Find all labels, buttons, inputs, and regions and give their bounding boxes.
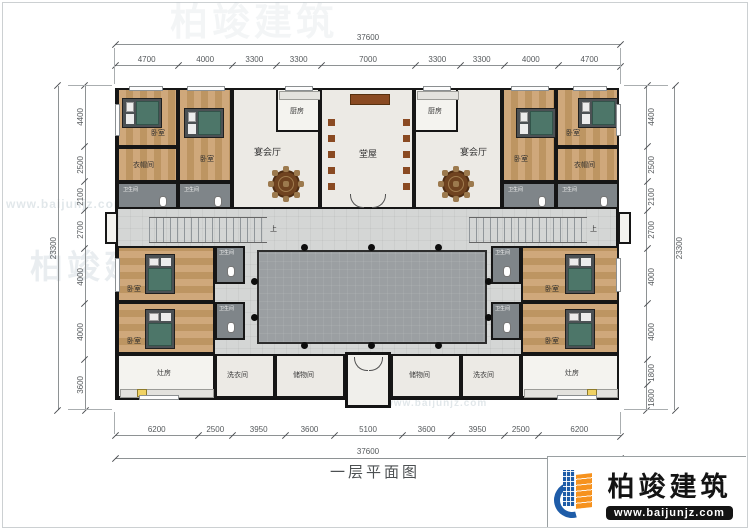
window-icon: [139, 395, 179, 400]
room-label: 卫生间: [508, 188, 523, 193]
dimension-value: 2700: [647, 221, 656, 239]
dimension-segment: 4000: [646, 249, 668, 305]
dimension-value: 5100: [359, 425, 377, 435]
bed-icon: [565, 309, 595, 349]
room-stove-left: 灶房: [117, 354, 215, 398]
dimension-value: 3300: [428, 55, 446, 65]
room-label: 储物间: [409, 372, 430, 379]
right-overall-dimension: 23300: [674, 86, 695, 410]
brand-building-icon: [554, 466, 600, 518]
room-bedroom-top-right-2: 卧室: [556, 88, 619, 147]
altar-table-icon: [350, 94, 390, 105]
room-main-hall: 堂屋: [320, 88, 414, 209]
column-dot: [301, 244, 308, 251]
extension-line: [68, 409, 112, 410]
column-dot: [251, 314, 258, 321]
door-arc-icon: [372, 194, 386, 208]
toilet-icon: [214, 196, 222, 207]
window-icon: [115, 104, 120, 136]
dimension-value: 3950: [468, 425, 486, 435]
dimension-segment: 4000: [646, 304, 668, 360]
dimension-value: 4400: [76, 108, 85, 126]
dimension-value: 1800: [647, 389, 656, 407]
dimension-value: 2700: [76, 221, 85, 239]
room-label: 卧室: [151, 130, 165, 137]
window-icon: [187, 86, 225, 91]
room-label: 卧室: [545, 286, 559, 293]
toilet-icon: [503, 266, 511, 277]
dimension-value: 2500: [76, 156, 85, 174]
dimension-value: 3300: [245, 55, 263, 65]
room-label: 洗衣间: [227, 372, 248, 379]
dimension-segment: 4000: [504, 46, 558, 66]
dimension-value: 37600: [357, 447, 379, 458]
door-arc-icon: [350, 194, 364, 208]
round-table-icon: [272, 170, 300, 198]
dimension-segment: 2500: [64, 147, 86, 182]
dimension-value: 4000: [522, 55, 540, 65]
bed-icon: [145, 254, 175, 294]
dimension-value: 2500: [647, 156, 656, 174]
room-cloakroom-right: 衣帽间: [556, 147, 619, 182]
dimension-value: 3950: [250, 425, 268, 435]
dimension-segment: 4000: [64, 249, 86, 305]
window-icon: [616, 104, 621, 136]
toilet-icon: [538, 196, 546, 207]
room-bedroom-wing-right-1: 卧室: [521, 246, 619, 302]
room-bathroom: 卫生间: [556, 182, 619, 209]
dimension-value: 4000: [76, 268, 85, 286]
dimension-segment: 1800: [646, 385, 668, 410]
room-label: 宴会厅: [254, 148, 281, 157]
room-bedroom-wing-left-2: 卧室: [117, 302, 215, 354]
dimension-segment: 3600: [402, 416, 450, 436]
dimension-segment: 7000: [321, 46, 415, 66]
room-label: 衣帽间: [574, 162, 595, 169]
dimension-segment: 4700: [115, 46, 178, 66]
dimension-segment: 5100: [334, 416, 403, 436]
dimension-segment: 3300: [415, 46, 459, 66]
dimension-value: 2500: [206, 425, 224, 435]
window-icon: [616, 258, 621, 292]
dimension-segment: 2500: [504, 416, 538, 436]
room-bedroom-top-left-2: 卧室: [178, 88, 232, 182]
extension-line: [620, 48, 621, 84]
dimension-segment: 3600: [285, 416, 333, 436]
column-dot: [301, 342, 308, 349]
room-label: 卫生间: [495, 307, 510, 312]
toilet-icon: [227, 266, 235, 277]
room-storage-right: 储物间: [391, 354, 461, 398]
bottom-overall-dimension: 37600: [115, 438, 621, 459]
brand-url: www.baijunjz.com: [606, 506, 733, 520]
room-label: 卧室: [200, 156, 214, 163]
window-icon: [129, 86, 163, 91]
dimension-value: 4400: [647, 108, 656, 126]
dimension-segment: 4000: [178, 46, 232, 66]
dimension-segment: 3950: [232, 416, 285, 436]
room-laundry-left: 洗衣间: [215, 354, 275, 398]
dimension-value: 23300: [49, 237, 58, 259]
floorplan-page: { "page": { "title": "一层平面图" }, "brand":…: [0, 0, 750, 530]
dimension-segment: 4400: [64, 86, 86, 147]
bed-icon: [578, 98, 618, 128]
toilet-icon: [227, 322, 235, 333]
room-bedroom-top-right-1: 卧室: [502, 88, 556, 182]
column-dot: [435, 342, 442, 349]
dimension-value: 6200: [148, 425, 166, 435]
dimension-value: 4000: [647, 323, 656, 341]
dimension-value: 3300: [290, 55, 308, 65]
door-arc-icon: [369, 357, 383, 371]
dimension-segment: 6200: [538, 416, 621, 436]
room-bedroom-top-left-1: 卧室: [117, 88, 178, 147]
room-label: 卫生间: [562, 188, 577, 193]
window-icon: [285, 86, 313, 91]
bed-icon: [145, 309, 175, 349]
bed-icon: [516, 108, 556, 138]
room-label: 卧室: [127, 286, 141, 293]
entrance-vestibule: [345, 352, 391, 408]
dimension-value: 4000: [76, 323, 85, 341]
dimension-value: 3600: [76, 376, 85, 394]
dimension-segment: 4700: [558, 46, 621, 66]
window-icon: [511, 86, 549, 91]
logo-tower-orange: [576, 473, 592, 509]
bottom-dimension-chain: 620025003950360051003600395025006200: [115, 416, 621, 436]
room-label: 厨房: [428, 108, 442, 115]
left-dimension-chain: 4400250021002700400040003600: [64, 86, 86, 410]
room-label: 卫生间: [184, 188, 199, 193]
dimension-value: 1800: [647, 364, 656, 382]
column-dot: [251, 278, 258, 285]
room-label: 洗衣间: [473, 372, 494, 379]
toilet-icon: [600, 196, 608, 207]
dimension-value: 4000: [647, 268, 656, 286]
dimension-segment: 4400: [646, 86, 668, 147]
brand-name: 柏竣建筑: [607, 465, 731, 504]
top-overall-dimension: 37600: [115, 18, 621, 45]
dimension-segment: 3300: [232, 46, 276, 66]
drawing-title: 一层平面图: [280, 461, 470, 482]
room-bathroom: 卫生间: [491, 246, 521, 284]
door-arc-icon: [354, 357, 368, 371]
stairs-icon: 上: [469, 217, 587, 243]
stairs-icon: 上: [149, 217, 267, 243]
room-label: 卫生间: [123, 188, 138, 193]
room-bathroom: 卫生间: [502, 182, 556, 209]
extension-line: [624, 409, 668, 410]
dimension-value: 2100: [647, 188, 656, 206]
extension-line: [114, 412, 115, 434]
room-bathroom: 卫生间: [491, 302, 521, 340]
round-table-icon: [442, 170, 470, 198]
bed-icon: [184, 108, 224, 138]
dimension-segment: 2700: [64, 211, 86, 249]
room-label: 卫生间: [219, 251, 234, 256]
room-bedroom-wing-left-1: 卧室: [117, 246, 215, 302]
toilet-icon: [159, 196, 167, 207]
top-dimension-chain: 470040003300330070003300330040004700: [115, 46, 621, 66]
room-label: 灶房: [157, 370, 171, 377]
dimension-segment: 3300: [276, 46, 320, 66]
chair-row-icon: [328, 116, 335, 190]
dimension-value: 37600: [357, 33, 379, 44]
dimension-segment: 2700: [646, 211, 668, 249]
kitchen-counter: [279, 91, 321, 100]
dimension-value: 6200: [570, 425, 588, 435]
dimension-value: 2500: [512, 425, 530, 435]
logo-tower-blue: [563, 470, 575, 506]
room-label: 储物间: [293, 372, 314, 379]
dimension-segment: 2500: [198, 416, 232, 436]
room-label: 灶房: [565, 370, 579, 377]
side-entrance-left: [105, 212, 118, 244]
dimension-segment: 3600: [64, 360, 86, 410]
right-dimension-chain: 44002500210027004000400018001800: [646, 86, 668, 410]
kitchen-counter: [417, 91, 459, 100]
room-label: 卫生间: [219, 307, 234, 312]
dimension-value: 4700: [138, 55, 156, 65]
extension-line: [624, 85, 668, 86]
dimension-value: 3600: [301, 425, 319, 435]
room-label: 厨房: [290, 108, 304, 115]
room-kitchen-left: 厨房: [276, 88, 320, 132]
dimension-segment: 2100: [64, 182, 86, 211]
room-label: 堂屋: [359, 150, 377, 159]
room-bathroom: 卫生间: [215, 246, 245, 284]
window-icon: [573, 86, 607, 91]
stairs-up-label: 上: [590, 226, 597, 233]
dimension-segment: 2500: [646, 147, 668, 182]
floor-plan: 卧室 衣帽间 卧室 卫生间 卫生间 宴会厅 厨房 堂屋 宴会厅 厨房: [115, 86, 621, 410]
room-bathroom: 卫生间: [215, 302, 245, 340]
room-label: 卫生间: [495, 251, 510, 256]
dimension-value: 3300: [473, 55, 491, 65]
column-dot: [435, 244, 442, 251]
courtyard: [257, 250, 487, 344]
dimension-segment: 4000: [64, 304, 86, 360]
room-label: 衣帽间: [133, 162, 154, 169]
dimension-value: 4700: [580, 55, 598, 65]
column-dot: [368, 244, 375, 251]
room-label: 宴会厅: [460, 148, 487, 157]
brand-logo-box: 柏竣建筑 www.baijunjz.com: [547, 456, 746, 527]
dimension-value: 7000: [359, 55, 377, 65]
room-bedroom-wing-right-2: 卧室: [521, 302, 619, 354]
chair-row-icon: [403, 116, 410, 190]
window-icon: [423, 86, 451, 91]
room-label: 卧室: [127, 338, 141, 345]
dimension-value: 4000: [196, 55, 214, 65]
brand-text: 柏竣建筑 www.baijunjz.com: [606, 465, 733, 520]
dimension-segment: 6200: [115, 416, 198, 436]
side-entrance-right: [618, 212, 631, 244]
left-overall-dimension: 23300: [38, 86, 59, 410]
stairs-up-label: 上: [270, 226, 277, 233]
window-icon: [115, 258, 120, 292]
room-cloakroom-left: 衣帽间: [117, 147, 178, 182]
dimension-segment: 3300: [460, 46, 504, 66]
dimension-segment: 3950: [451, 416, 504, 436]
extension-line: [620, 412, 621, 434]
bed-icon: [565, 254, 595, 294]
dimension-value: 23300: [675, 237, 684, 259]
room-label: 卧室: [514, 156, 528, 163]
extension-line: [114, 48, 115, 84]
room-label: 卧室: [545, 338, 559, 345]
bed-icon: [122, 98, 162, 128]
window-icon: [557, 395, 597, 400]
toilet-icon: [503, 322, 511, 333]
room-laundry-right: 洗衣间: [461, 354, 521, 398]
room-kitchen-right: 厨房: [414, 88, 458, 132]
column-dot: [368, 342, 375, 349]
room-storage-left: 储物间: [275, 354, 345, 398]
extension-line: [68, 85, 112, 86]
room-stove-right: 灶房: [521, 354, 619, 398]
dimension-value: 3600: [418, 425, 436, 435]
room-label: 卧室: [566, 130, 580, 137]
dimension-value: 2100: [76, 188, 85, 206]
room-bathroom: 卫生间: [178, 182, 232, 209]
room-bathroom: 卫生间: [117, 182, 178, 209]
